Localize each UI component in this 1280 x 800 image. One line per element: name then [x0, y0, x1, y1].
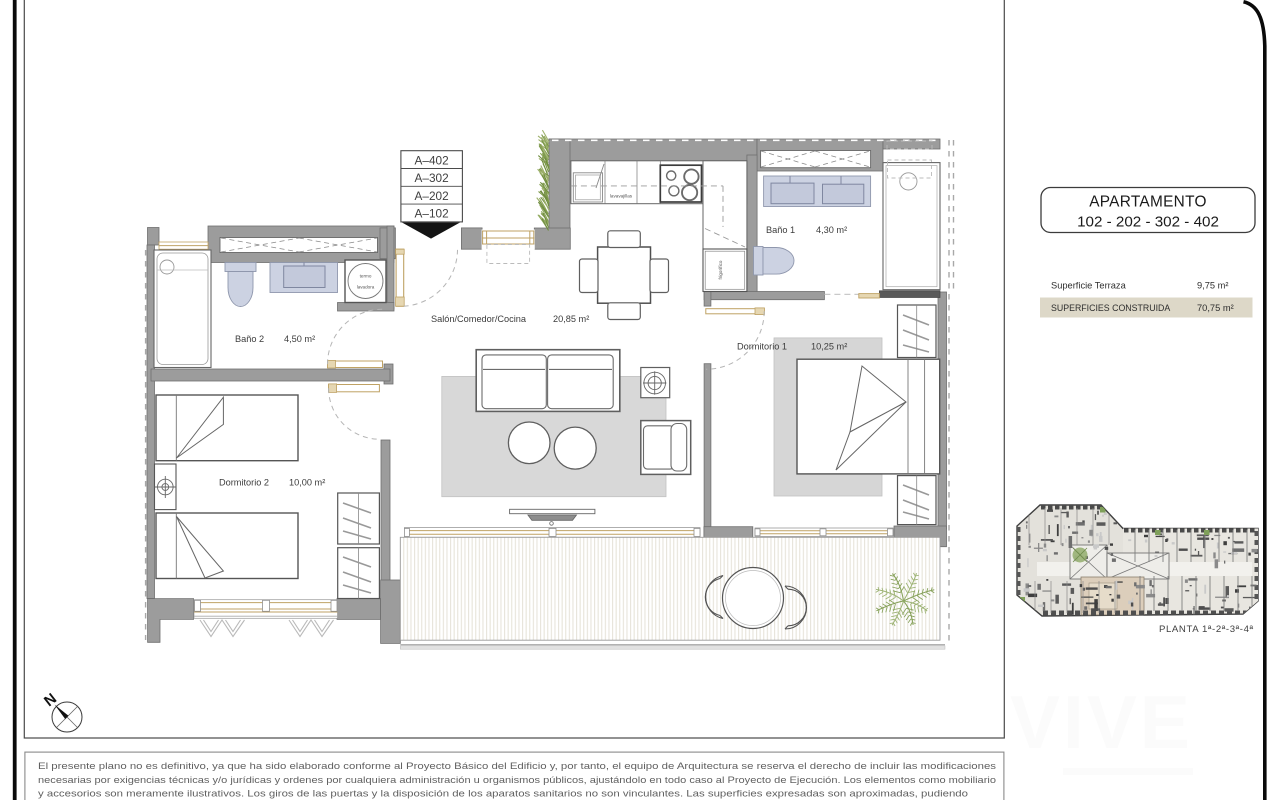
svg-text:APARTAMENTO: APARTAMENTO: [1089, 194, 1207, 211]
svg-text:Dormitorio 1: Dormitorio 1: [737, 342, 787, 352]
svg-text:A–202: A–202: [415, 189, 449, 203]
svg-text:El presente plano no es defini: El presente plano no es definitivo, ya q…: [38, 761, 996, 771]
svg-text:A–102: A–102: [415, 207, 449, 221]
svg-text:SUPERFICIES CONSTRUIDA: SUPERFICIES CONSTRUIDA: [1051, 303, 1170, 313]
svg-text:lavadora: lavadora: [357, 285, 375, 290]
svg-text:Baño 2: Baño 2: [235, 334, 264, 344]
svg-text:y accesorios son meramente ilu: y accesorios son meramente ilustrativos.…: [38, 789, 968, 799]
svg-text:lavavajillas: lavavajillas: [610, 194, 633, 199]
svg-text:VIVE: VIVE: [1010, 680, 1193, 764]
svg-text:4,30 m²: 4,30 m²: [816, 225, 847, 235]
svg-text:102 - 202 - 302 - 402: 102 - 202 - 302 - 402: [1077, 214, 1219, 231]
svg-text:10,00 m²: 10,00 m²: [289, 478, 325, 488]
svg-text:Superficie Terraza: Superficie Terraza: [1051, 281, 1127, 291]
svg-text:termo: termo: [360, 274, 372, 279]
svg-text:20,85 m²: 20,85 m²: [553, 314, 589, 324]
svg-text:A–402: A–402: [415, 153, 449, 167]
svg-text:PLANTA 1ª-2ª-3ª-4ª: PLANTA 1ª-2ª-3ª-4ª: [1159, 624, 1254, 635]
svg-text:70,75 m²: 70,75 m²: [1197, 303, 1234, 313]
svg-text:10,25 m²: 10,25 m²: [811, 342, 847, 352]
svg-text:Baño 1: Baño 1: [766, 225, 795, 235]
svg-text:Dormitorio 2: Dormitorio 2: [219, 478, 269, 488]
svg-text:frigorífico: frigorífico: [718, 260, 723, 279]
svg-text:4,50 m²: 4,50 m²: [284, 334, 315, 344]
svg-text:Salón/Comedor/Cocina: Salón/Comedor/Cocina: [431, 314, 527, 324]
svg-text:necesarias por exigencias técn: necesarias por exigencias técnicas y/o j…: [38, 775, 996, 785]
svg-text:A–302: A–302: [415, 171, 449, 185]
svg-text:9,75 m²: 9,75 m²: [1197, 281, 1229, 291]
